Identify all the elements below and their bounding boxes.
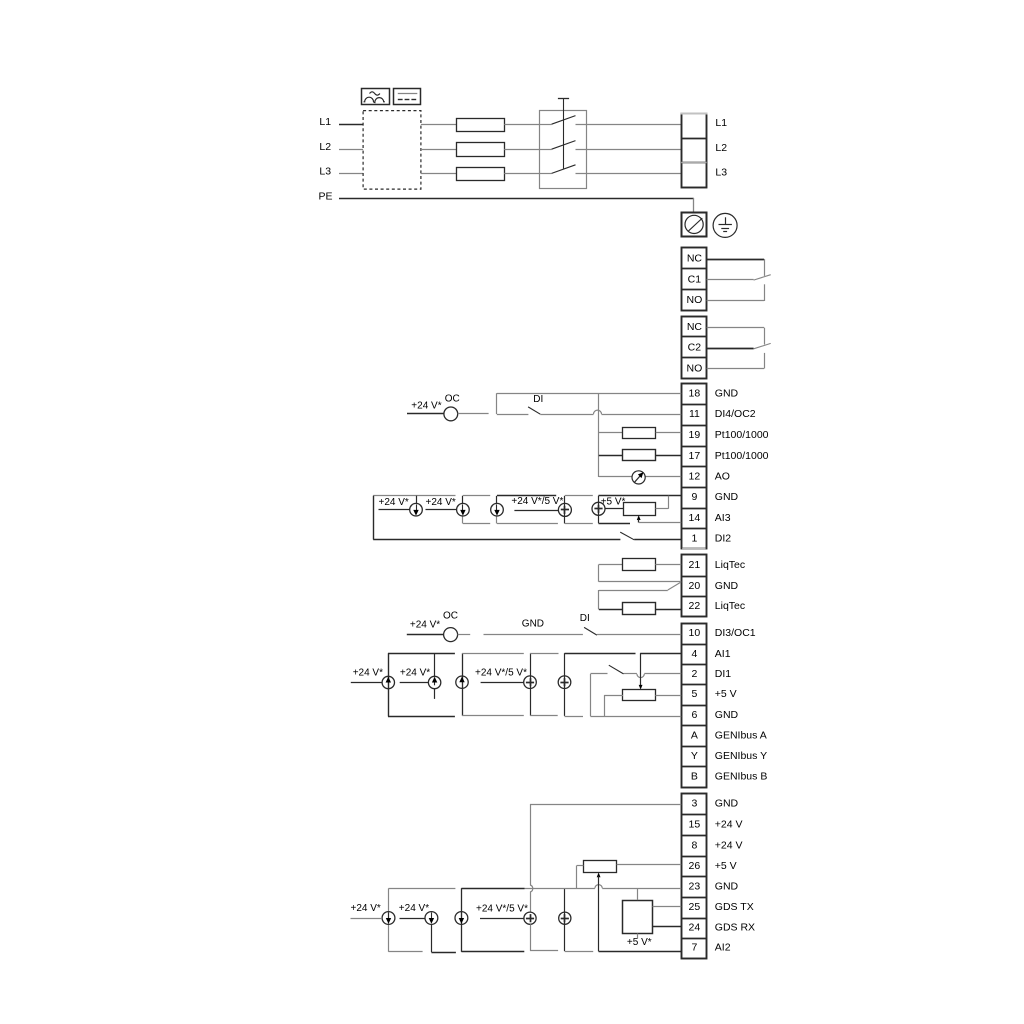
- svg-text:L1: L1: [715, 117, 727, 129]
- svg-text:+5 V*: +5 V*: [601, 497, 626, 508]
- svg-text:19: 19: [689, 429, 701, 441]
- svg-text:14: 14: [689, 512, 701, 524]
- svg-text:NO: NO: [687, 294, 703, 306]
- svg-text:GENIbus Y: GENIbus Y: [715, 750, 767, 762]
- svg-text:DI: DI: [533, 394, 543, 405]
- svg-text:9: 9: [691, 491, 697, 503]
- svg-text:+5 V: +5 V: [715, 860, 737, 872]
- svg-text:GDS TX: GDS TX: [715, 901, 754, 913]
- svg-text:+24 V*: +24 V*: [379, 497, 409, 508]
- svg-text:+24 V*/5 V*: +24 V*/5 V*: [511, 496, 563, 507]
- svg-text:GENIbus B: GENIbus B: [715, 770, 768, 782]
- svg-text:20: 20: [689, 580, 701, 592]
- svg-text:DI: DI: [580, 613, 590, 624]
- svg-text:+24 V*: +24 V*: [351, 903, 381, 914]
- svg-text:21: 21: [689, 559, 701, 571]
- svg-text:OC: OC: [443, 611, 458, 622]
- svg-text:+24 V*: +24 V*: [411, 401, 441, 412]
- svg-text:+24 V*: +24 V*: [410, 620, 440, 631]
- svg-text:4: 4: [691, 648, 697, 660]
- svg-text:22: 22: [689, 600, 701, 612]
- svg-text:5: 5: [691, 688, 697, 700]
- svg-text:10: 10: [689, 627, 701, 639]
- svg-text:11: 11: [689, 408, 700, 420]
- svg-text:GND: GND: [715, 709, 739, 721]
- svg-text:8: 8: [691, 839, 697, 851]
- svg-text:A: A: [691, 729, 698, 741]
- svg-text:6: 6: [691, 709, 697, 721]
- svg-text:+5 V: +5 V: [715, 688, 737, 700]
- svg-text:L2: L2: [319, 141, 331, 153]
- svg-text:OC: OC: [445, 394, 460, 405]
- svg-text:18: 18: [689, 388, 701, 400]
- svg-text:17: 17: [689, 450, 701, 462]
- svg-text:23: 23: [689, 880, 701, 892]
- svg-text:C2: C2: [688, 341, 702, 353]
- svg-text:GND: GND: [715, 388, 739, 400]
- svg-text:+24 V: +24 V: [715, 819, 743, 831]
- svg-text:DI1: DI1: [715, 668, 732, 680]
- svg-text:L3: L3: [715, 166, 727, 178]
- svg-text:DI2: DI2: [715, 532, 732, 544]
- svg-text:PE: PE: [319, 190, 333, 202]
- svg-text:25: 25: [689, 901, 701, 913]
- svg-text:L2: L2: [715, 142, 727, 154]
- svg-text:AI3: AI3: [715, 512, 731, 524]
- svg-text:DI3/OC1: DI3/OC1: [715, 627, 756, 639]
- svg-text:AI2: AI2: [715, 942, 731, 954]
- svg-text:AI1: AI1: [715, 648, 731, 660]
- svg-text:1: 1: [691, 532, 697, 544]
- svg-text:AO: AO: [715, 470, 730, 482]
- svg-text:+5 V*: +5 V*: [627, 937, 652, 948]
- svg-text:DI4/OC2: DI4/OC2: [715, 408, 756, 420]
- svg-text:Pt100/1000: Pt100/1000: [715, 429, 769, 441]
- svg-text:C1: C1: [688, 273, 702, 285]
- svg-text:+24 V*: +24 V*: [400, 668, 430, 679]
- svg-text:B: B: [691, 770, 698, 782]
- svg-text:GND: GND: [715, 580, 739, 592]
- svg-text:GND: GND: [715, 491, 739, 503]
- svg-text:2: 2: [691, 668, 697, 680]
- svg-text:L3: L3: [319, 165, 331, 177]
- svg-text:+24 V*: +24 V*: [353, 668, 383, 679]
- svg-text:+24 V*/5 V*: +24 V*/5 V*: [476, 903, 528, 914]
- svg-text:L1: L1: [319, 116, 331, 128]
- svg-text:LiqTec: LiqTec: [715, 600, 745, 612]
- svg-text:15: 15: [689, 819, 701, 831]
- svg-text:12: 12: [689, 470, 701, 482]
- svg-text:+24 V: +24 V: [715, 839, 743, 851]
- svg-text:Y: Y: [691, 750, 698, 762]
- svg-text:NO: NO: [687, 362, 703, 374]
- svg-text:Pt100/1000: Pt100/1000: [715, 450, 769, 462]
- svg-text:26: 26: [689, 860, 701, 872]
- svg-text:+24 V*: +24 V*: [426, 497, 456, 508]
- svg-text:LiqTec: LiqTec: [715, 559, 745, 571]
- svg-text:NC: NC: [687, 321, 703, 333]
- svg-text:GND: GND: [715, 880, 739, 892]
- svg-text:+24 V*: +24 V*: [399, 903, 429, 914]
- svg-text:GDS RX: GDS RX: [715, 922, 755, 934]
- svg-text:GENIbus A: GENIbus A: [715, 729, 767, 741]
- svg-text:GND: GND: [715, 797, 739, 809]
- svg-text:NC: NC: [687, 252, 703, 264]
- svg-text:GND: GND: [522, 618, 544, 629]
- svg-text:3: 3: [691, 797, 697, 809]
- svg-text:+24 V*/5 V*: +24 V*/5 V*: [475, 668, 527, 679]
- svg-text:7: 7: [691, 942, 697, 954]
- svg-text:24: 24: [689, 922, 701, 934]
